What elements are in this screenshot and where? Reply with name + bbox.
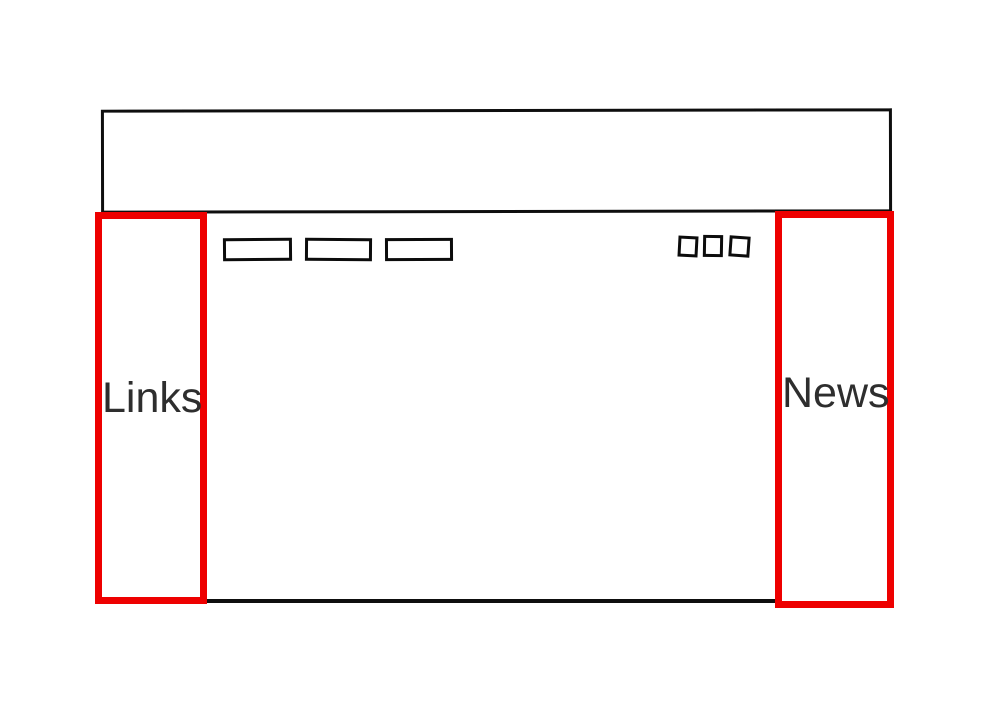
- small-square-icon-3[interactable]: [728, 235, 750, 257]
- links-sidebar-label: Links: [102, 377, 200, 420]
- nav-button-placeholder-1[interactable]: [223, 238, 292, 262]
- nav-button-placeholder-2[interactable]: [305, 238, 372, 261]
- nav-button-placeholder-3[interactable]: [385, 238, 453, 261]
- links-sidebar-highlight: Links: [95, 212, 207, 604]
- news-sidebar-label: News: [782, 372, 887, 415]
- wireframe-canvas: Links News: [0, 0, 1000, 713]
- small-square-icon-2[interactable]: [703, 235, 723, 257]
- content-bottom-border: [200, 599, 782, 603]
- small-square-icon-1[interactable]: [677, 235, 698, 257]
- news-sidebar-highlight: News: [775, 211, 894, 608]
- header-banner: [101, 108, 892, 213]
